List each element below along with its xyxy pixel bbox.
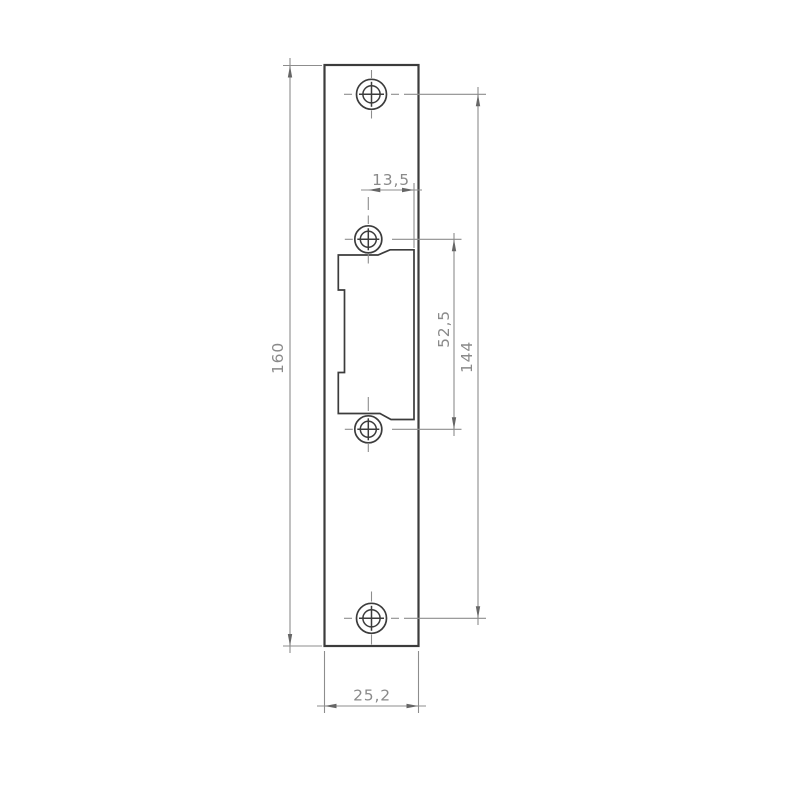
arrow-down-icon (288, 634, 292, 646)
arrow-up-icon (452, 239, 456, 251)
strike-plate-drawing: 160 13,5 52,5 144 25,2 (0, 0, 800, 800)
dimension-cutout-hole-spacing: 52,5 (392, 233, 462, 436)
arrow-up-icon (476, 94, 480, 106)
arrow-right-icon (407, 704, 419, 708)
dimension-label-plate-width: 25,2 (353, 687, 391, 705)
dimension-plate-height: 160 (269, 58, 322, 653)
dimension-label-plate-height: 160 (269, 342, 287, 374)
screw-hole-top (344, 70, 399, 119)
technical-drawing-page: 160 13,5 52,5 144 25,2 (0, 0, 800, 800)
arrow-left-icon (325, 704, 337, 708)
dimension-hole-to-cutout-edge: 13,5 (361, 171, 422, 248)
faceplate-outline (325, 65, 419, 646)
faceplate (325, 65, 419, 646)
screw-hole-lower-middle (345, 397, 382, 452)
dimension-plate-width: 25,2 (317, 651, 426, 713)
latch-cutout (338, 250, 414, 420)
centerline-marks (345, 197, 369, 264)
dimension-label-outer-hole-spacing: 144 (458, 341, 476, 373)
screw-hole-upper-middle (345, 197, 382, 264)
dimension-label-hole-to-cutout-edge: 13,5 (372, 171, 410, 189)
dimension-label-cutout-hole-spacing: 52,5 (435, 310, 453, 348)
arrow-up-icon (288, 66, 292, 78)
screw-hole-bottom (344, 592, 399, 645)
arrow-down-icon (476, 606, 480, 618)
arrow-down-icon (452, 417, 456, 429)
dimension-outer-hole-spacing: 144 (404, 87, 486, 625)
